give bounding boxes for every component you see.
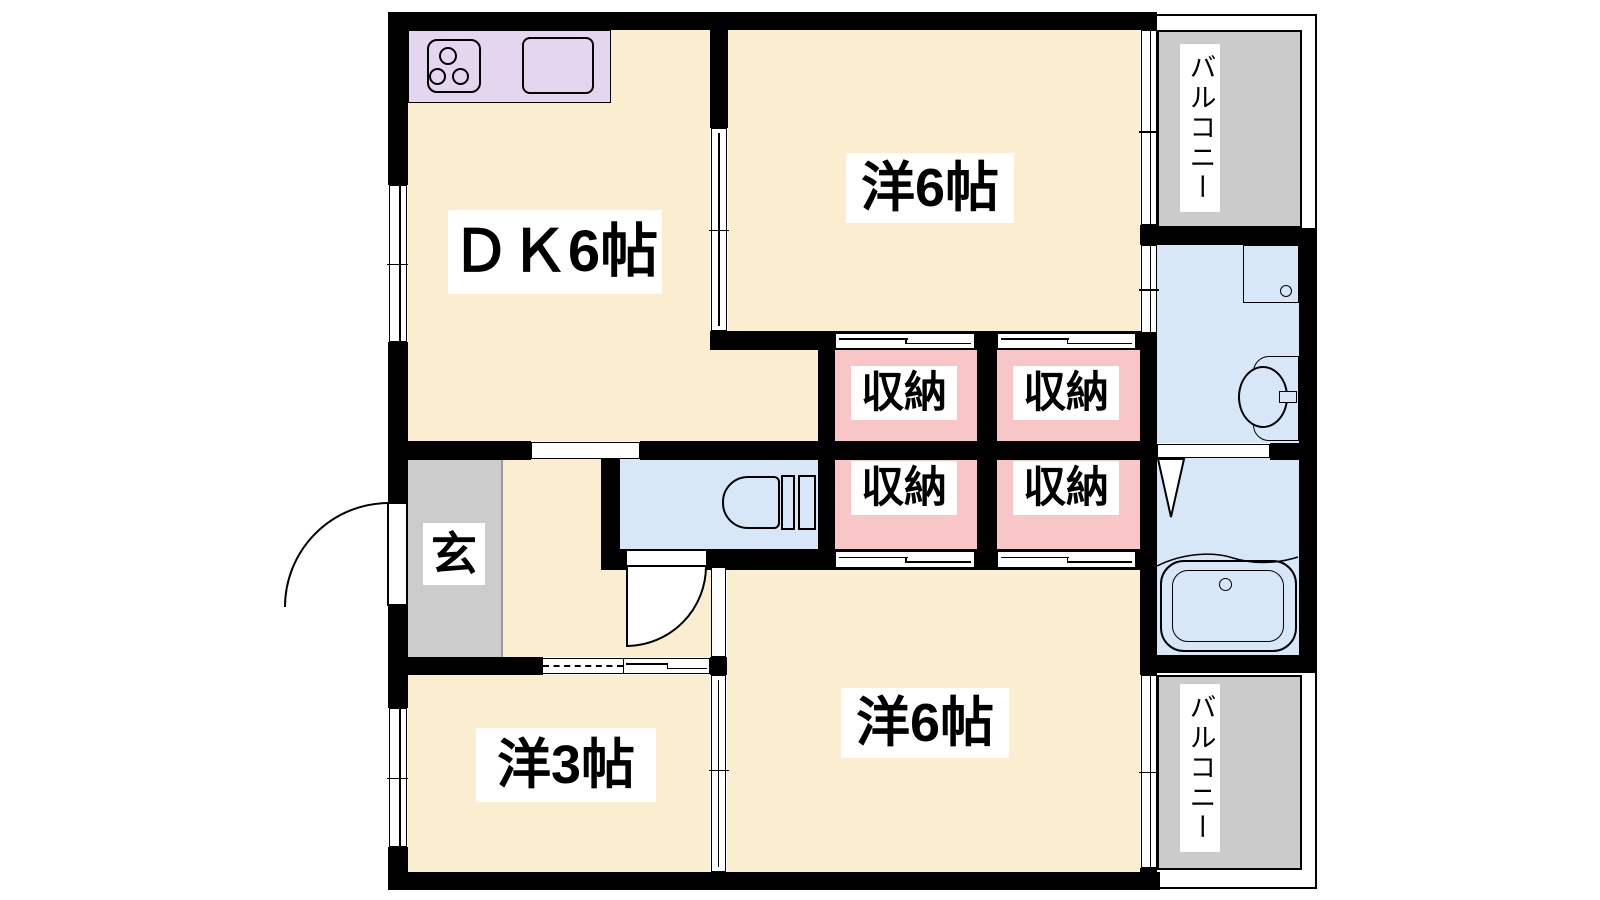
front-door-swing-arc-icon (285, 503, 388, 607)
door-arcs-overlay (0, 0, 1600, 900)
toilet-door-swing-arc-icon (627, 566, 706, 646)
floorplan-canvas: ＤＫ6帖 洋6帖 洋6帖 洋3帖 玄 収納 収納 収納 収納 バルコニー バルコ… (0, 0, 1600, 900)
bath-edge-curve-icon (1157, 554, 1298, 566)
folding-door-triangle-icon (1158, 459, 1184, 517)
